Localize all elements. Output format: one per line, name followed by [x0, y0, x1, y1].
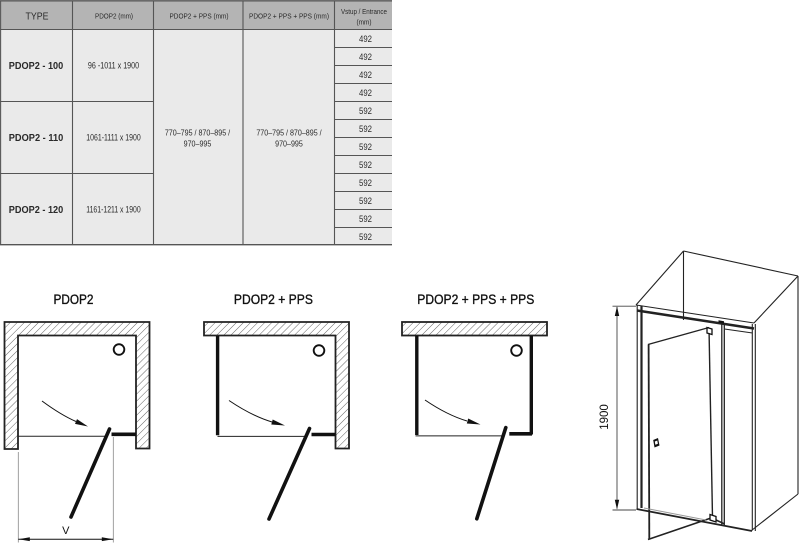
svg-text:PDOP2 + PPS (mm): PDOP2 + PPS (mm) [170, 11, 229, 20]
svg-text:(mm): (mm) [357, 17, 372, 26]
svg-text:Vstup / Entrance: Vstup / Entrance [341, 7, 387, 16]
svg-text:770–795 / 870–895 /: 770–795 / 870–895 / [165, 127, 231, 137]
svg-text:592: 592 [359, 214, 372, 225]
svg-text:970–995: 970–995 [184, 138, 212, 148]
svg-text:970–995: 970–995 [275, 138, 303, 148]
svg-text:770–795 / 870–895 /: 770–795 / 870–895 / [256, 127, 322, 137]
svg-text:PDOP2 (mm): PDOP2 (mm) [95, 11, 133, 20]
svg-text:592: 592 [359, 124, 372, 135]
svg-text:TYPE: TYPE [26, 12, 49, 23]
svg-text:492: 492 [359, 34, 372, 45]
svg-text:PDOP2 - 110: PDOP2 - 110 [9, 132, 64, 144]
svg-text:PDOP2 + PPS + PPS: PDOP2 + PPS + PPS [417, 292, 534, 307]
svg-text:492: 492 [359, 52, 372, 63]
svg-text:492: 492 [359, 88, 372, 99]
svg-text:1161-1211 x 1900: 1161-1211 x 1900 [86, 204, 140, 214]
svg-text:592: 592 [359, 196, 372, 207]
svg-text:592: 592 [359, 142, 372, 153]
svg-text:592: 592 [359, 178, 372, 189]
svg-text:96 -1011 x 1900: 96 -1011 x 1900 [88, 60, 139, 70]
svg-text:PDOP2 - 100: PDOP2 - 100 [9, 60, 64, 72]
svg-text:PDOP2 + PPS: PDOP2 + PPS [234, 292, 313, 307]
svg-text:PDOP2 - 120: PDOP2 - 120 [9, 204, 64, 216]
svg-text:PDOP2 + PPS + PPS (mm): PDOP2 + PPS + PPS (mm) [249, 11, 329, 20]
svg-text:1061-1111 x 1900: 1061-1111 x 1900 [86, 132, 140, 142]
svg-text:V: V [62, 525, 70, 537]
svg-text:592: 592 [359, 232, 372, 243]
svg-text:592: 592 [359, 160, 372, 171]
svg-text:492: 492 [359, 70, 372, 81]
svg-text:PDOP2: PDOP2 [54, 292, 94, 307]
svg-text:592: 592 [359, 106, 372, 117]
svg-text:1900: 1900 [599, 404, 611, 430]
